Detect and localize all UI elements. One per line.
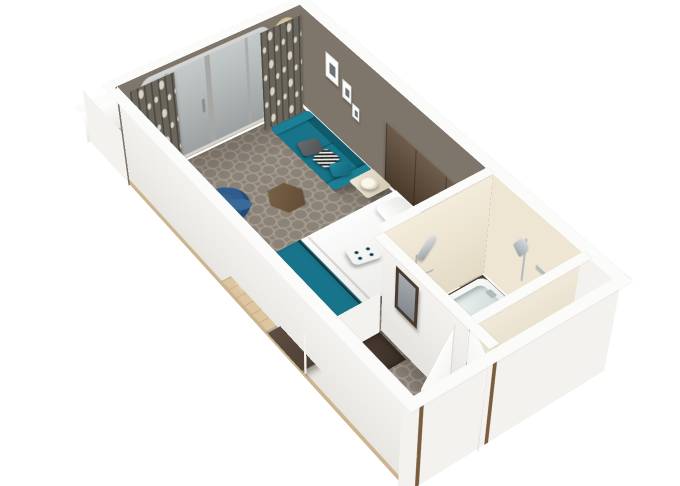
wall-art-frame-2	[342, 78, 351, 104]
door-mullion-center	[204, 54, 216, 150]
bath-mirror-glass	[398, 272, 416, 322]
art-mat-3	[355, 110, 358, 119]
wall-art-frame-1	[325, 51, 338, 87]
art-mat-2	[345, 87, 349, 98]
table-lamp-1	[357, 175, 382, 192]
accent-pillow	[344, 240, 383, 266]
art-mat-1	[329, 62, 335, 78]
shower-head	[513, 236, 531, 257]
wall-art-frame-3	[352, 103, 359, 123]
door-mullion-right	[245, 37, 253, 131]
curtain-right	[260, 15, 303, 130]
door-handle	[202, 98, 206, 113]
stateroom-floorplan-render	[0, 0, 680, 486]
